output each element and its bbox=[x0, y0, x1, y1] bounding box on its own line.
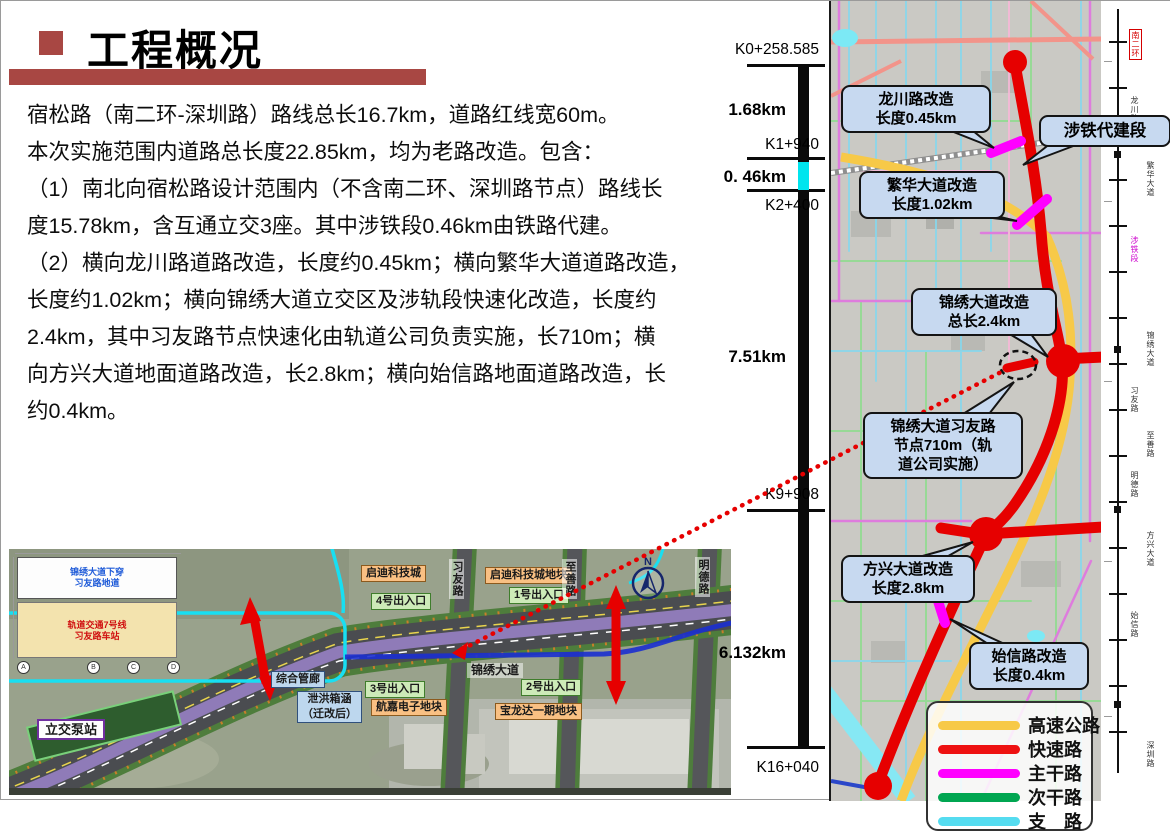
body-line: 本次实施范围内道路总长度22.85km，均为老路改造。包含： bbox=[27, 134, 732, 171]
callout-line: 涉铁代建段 bbox=[1047, 120, 1163, 142]
body-line: 约0.4km。 bbox=[27, 393, 732, 430]
strip-tick bbox=[1109, 547, 1127, 549]
callout-jinxiu: 锦绣大道改造 总长2.4km bbox=[911, 288, 1057, 336]
strip-road-label: 至善路 bbox=[1145, 431, 1156, 458]
body-line: 长度约1.02km；横向锦绣大道立交区及涉轨段快速化改造，长度约 bbox=[27, 282, 732, 319]
label-hangjia-block: 航嘉电子地块 bbox=[371, 699, 447, 716]
callout-line: 锦绣大道改造 bbox=[919, 293, 1049, 312]
label-exit-4: 4号出入口 bbox=[371, 593, 431, 610]
strip-road-label: 涉铁段 bbox=[1129, 236, 1140, 263]
segment-length-label: 7.51km bbox=[661, 347, 786, 367]
legend-row: 次干路 bbox=[938, 785, 1091, 809]
body-line: （1）南北向宿松路设计范围内（不含南二环、深圳路节点）路线长 bbox=[27, 171, 732, 208]
strip-mark bbox=[1104, 561, 1112, 562]
callout-line: 方兴大道改造 bbox=[849, 560, 967, 579]
station-label: K16+040 bbox=[691, 759, 819, 777]
label-pump-station: 立交泵站 bbox=[37, 719, 105, 740]
callout-line: 长度0.45km bbox=[849, 109, 983, 128]
strip-road-label: 繁华大道 bbox=[1145, 161, 1156, 197]
station-label: K2+400 bbox=[691, 197, 819, 215]
legend-label: 支 路 bbox=[1028, 808, 1082, 834]
title-bullet-icon bbox=[39, 31, 63, 55]
map-legend: 高速公路 快速路 主干路 次干路 支 路 bbox=[926, 701, 1093, 831]
label-exit-2: 2号出入口 bbox=[521, 679, 581, 696]
slide: { "colors": { "accent": "#A84743", "call… bbox=[0, 0, 1170, 800]
body-line: （2）横向龙川路道路改造，长度约0.45km；横向繁华大道道路改造， bbox=[27, 245, 732, 282]
legend-label: 高速公路 bbox=[1028, 712, 1100, 738]
strip-tick bbox=[1109, 271, 1127, 273]
label-jinxiu-avenue: 锦绣大道 bbox=[467, 663, 523, 678]
segment-length-label: 0. 46km bbox=[661, 167, 786, 187]
chainage-tick bbox=[747, 189, 825, 192]
label-line: （迁改后） bbox=[302, 707, 357, 722]
label-qidi-block: 启迪科技城地块 bbox=[485, 567, 572, 584]
label-qidi-tech-city: 启迪科技城 bbox=[361, 565, 426, 582]
body-line: 2.4km，其中习友路节点快速化由轨道公司负责实施，长710m；横 bbox=[27, 319, 732, 356]
strip-road-label: 锦绣大道 bbox=[1145, 331, 1156, 367]
strip-road-label: 方兴大道 bbox=[1145, 531, 1156, 567]
legend-row: 高速公路 bbox=[938, 713, 1091, 737]
strip-road-label: 习友路 bbox=[1129, 386, 1140, 413]
chainage-rail-section bbox=[798, 162, 809, 190]
label-xiyou-road: 习友路 bbox=[449, 559, 464, 599]
fastroad-swatch-icon bbox=[938, 745, 1020, 754]
strip-tick bbox=[1109, 363, 1127, 365]
node-detail-map: N 锦绣大道下穿 习友路地道 轨道交通7号线 习友路车站 A B C D 立交泵… bbox=[9, 549, 731, 795]
callout-line: 总长2.4km bbox=[919, 312, 1049, 331]
strip-mark bbox=[1104, 381, 1112, 382]
dimension-line bbox=[15, 553, 181, 554]
label-line: 泄洪箱涵 bbox=[302, 692, 357, 707]
title-underline-bar bbox=[9, 69, 426, 85]
strip-road-label: 深圳路 bbox=[1145, 741, 1156, 768]
callout-line: 长度0.4km bbox=[977, 666, 1081, 685]
callout-line: 长度2.8km bbox=[849, 579, 967, 598]
callout-longchuan: 龙川路改造 长度0.45km bbox=[841, 85, 991, 133]
label-zhishan-road: 至善路 bbox=[562, 559, 577, 599]
label-exit-3: 3号出入口 bbox=[365, 681, 425, 698]
strip-node bbox=[1114, 346, 1121, 353]
axis-bubble: C bbox=[127, 661, 140, 674]
strip-mark bbox=[1104, 201, 1112, 202]
underpass-label-line: 锦绣大道下穿 bbox=[18, 567, 176, 578]
callout-shixin: 始信路改造 长度0.4km bbox=[969, 642, 1089, 690]
metro-label-line: 轨道交通7号线 bbox=[18, 620, 176, 631]
legend-label: 次干路 bbox=[1028, 784, 1082, 810]
strip-tick bbox=[1109, 225, 1127, 227]
underpass-cell: 锦绣大道下穿 习友路地道 bbox=[17, 557, 177, 599]
branchroad-swatch-icon bbox=[938, 817, 1020, 826]
strip-tick bbox=[1109, 409, 1127, 411]
strip-tick bbox=[1109, 593, 1127, 595]
callout-line: 龙川路改造 bbox=[849, 90, 983, 109]
strip-node bbox=[1114, 506, 1121, 513]
secondaryroad-swatch-icon bbox=[938, 793, 1020, 802]
callout-line: 繁华大道改造 bbox=[867, 176, 997, 195]
mainroad-swatch-icon bbox=[938, 769, 1020, 778]
strip-tick bbox=[1109, 731, 1127, 733]
strip-road-label: 南二环 bbox=[1129, 29, 1142, 60]
callout-jinxiu-xiyou-node: 锦绣大道习友路 节点710m（轨 道公司实施） bbox=[863, 412, 1023, 479]
chainage-tick bbox=[747, 746, 825, 749]
strip-mark bbox=[1104, 61, 1112, 62]
label-baolongda-block: 宝龙达一期地块 bbox=[495, 703, 582, 720]
metro-label-line: 习友路车站 bbox=[18, 631, 176, 642]
strip-tick bbox=[1109, 179, 1127, 181]
axis-bubble: B bbox=[87, 661, 100, 674]
callout-rail-section: 涉铁代建段 bbox=[1039, 115, 1170, 147]
strip-tick bbox=[1109, 639, 1127, 641]
strip-tick bbox=[1109, 87, 1127, 89]
callout-line: 锦绣大道习友路 bbox=[871, 417, 1015, 436]
segment-length-label: 1.68km bbox=[661, 100, 786, 120]
project-summary-text: 宿松路（南二环-深圳路）路线总长16.7km，道路红线宽60m。 本次实施范围内… bbox=[27, 97, 732, 430]
legend-row: 快速路 bbox=[938, 737, 1091, 761]
station-label: K9+908 bbox=[691, 486, 819, 504]
underpass-label-line: 习友路地道 bbox=[18, 578, 176, 589]
callout-line: 长度1.02km bbox=[867, 195, 997, 214]
callout-line: 道公司实施） bbox=[871, 455, 1015, 474]
label-utility-corridor: 综合管廊 bbox=[271, 671, 325, 688]
strip-node bbox=[1114, 151, 1121, 158]
callout-fangxing: 方兴大道改造 长度2.8km bbox=[841, 555, 975, 603]
station-label: K1+940 bbox=[691, 136, 819, 154]
strip-road-label: 明德路 bbox=[1129, 471, 1140, 498]
strip-tick bbox=[1109, 685, 1127, 687]
body-line: 度15.78km，含互通立交3座。其中涉铁段0.46km由铁路代建。 bbox=[27, 208, 732, 245]
legend-label: 主干路 bbox=[1028, 760, 1082, 786]
chainage-tick bbox=[747, 64, 825, 67]
chainage-tick bbox=[747, 157, 825, 160]
strip-tick bbox=[1109, 317, 1127, 319]
axis-bubble: D bbox=[167, 661, 180, 674]
callout-fanhua: 繁华大道改造 长度1.02km bbox=[859, 171, 1005, 219]
callout-line: 始信路改造 bbox=[977, 647, 1081, 666]
label-flood-culvert: 泄洪箱涵 （迁改后） bbox=[297, 691, 362, 723]
body-line: 宿松路（南二环-深圳路）路线总长16.7km，道路红线宽60m。 bbox=[27, 97, 732, 134]
legend-row: 支 路 bbox=[938, 809, 1091, 833]
label-exit-1: 1号出入口 bbox=[509, 587, 569, 604]
axis-bubble: A bbox=[17, 661, 30, 674]
strip-mark bbox=[1104, 716, 1112, 717]
strip-node bbox=[1114, 701, 1121, 708]
legend-label: 快速路 bbox=[1028, 736, 1082, 762]
strip-tick bbox=[1109, 501, 1127, 503]
strip-tick bbox=[1109, 41, 1127, 43]
segment-length-label: 6.132km bbox=[661, 643, 786, 663]
svg-text:N: N bbox=[644, 556, 652, 568]
station-label: K0+258.585 bbox=[691, 41, 819, 59]
body-line: 向方兴大道地面道路改造，长2.8km；横向始信路地面道路改造，长 bbox=[27, 356, 732, 393]
legend-row: 主干路 bbox=[938, 761, 1091, 785]
strip-road-label: 始信路 bbox=[1129, 611, 1140, 638]
expressway-swatch-icon bbox=[938, 721, 1020, 730]
callout-line: 节点710m（轨 bbox=[871, 436, 1015, 455]
strip-tick bbox=[1109, 455, 1127, 457]
chainage-tick bbox=[747, 509, 825, 512]
dimension-line bbox=[13, 557, 14, 659]
metro-station-cell: 轨道交通7号线 习友路车站 bbox=[17, 602, 177, 658]
label-mingde-road: 明德路 bbox=[695, 557, 710, 597]
